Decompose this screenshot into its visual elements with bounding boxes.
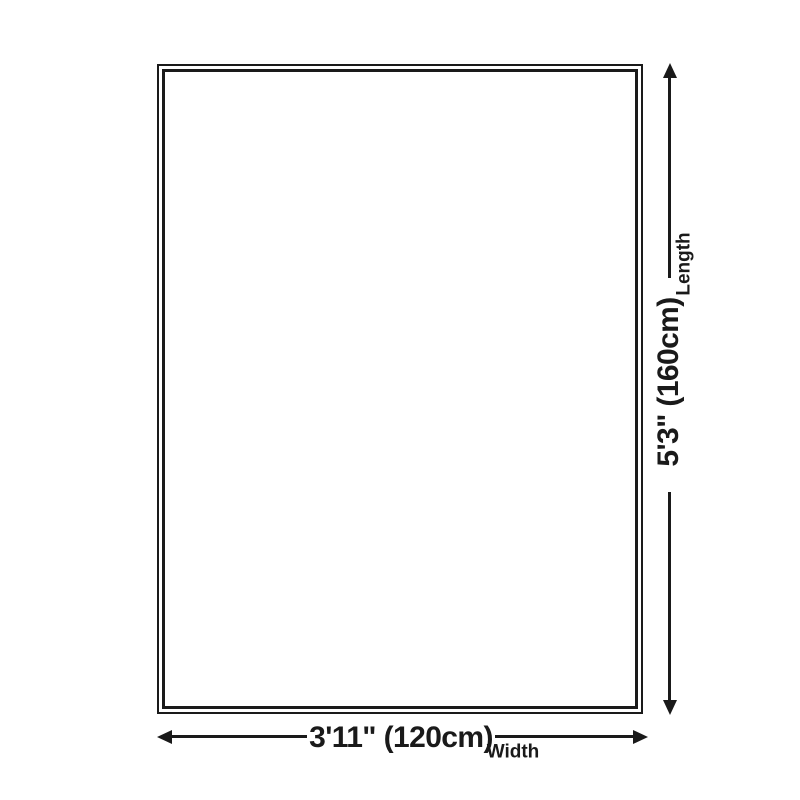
length-dimension-line-lower bbox=[668, 492, 671, 701]
rug-outline bbox=[157, 64, 643, 714]
arrow-up-icon bbox=[663, 63, 677, 78]
length-value: 5'3" (160cm) bbox=[654, 297, 684, 466]
width-dimension-line-right bbox=[495, 735, 634, 738]
length-dimension-line-upper bbox=[668, 77, 671, 278]
rug-inner-outline bbox=[162, 69, 638, 709]
rug-size-diagram: Length 5'3" (160cm) 3'11" (120cm) Width bbox=[0, 0, 800, 800]
length-axis-label: Length bbox=[675, 232, 694, 295]
width-dimension-line-left bbox=[170, 735, 307, 738]
arrow-down-icon bbox=[663, 700, 677, 715]
width-value: 3'11" (120cm) bbox=[309, 723, 493, 753]
arrow-right-icon bbox=[633, 730, 648, 744]
width-axis-label: Width bbox=[487, 743, 540, 762]
